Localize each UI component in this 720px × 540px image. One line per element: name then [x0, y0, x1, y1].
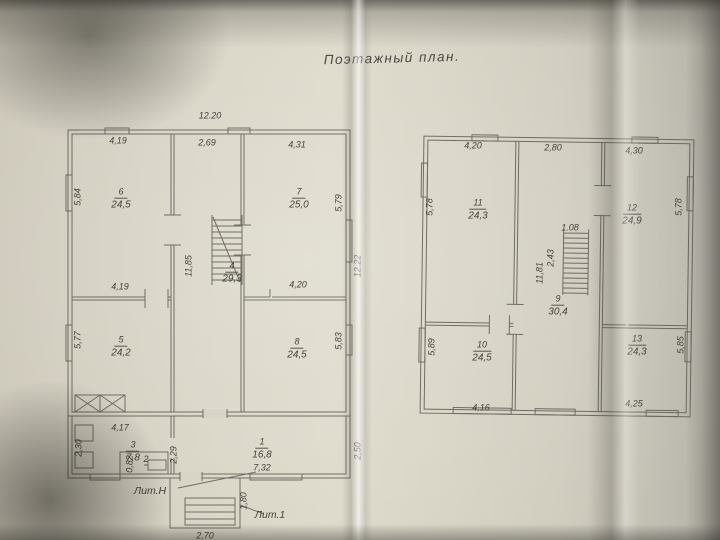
lit-h-label: Лит.Н — [134, 486, 166, 497]
dim-f2-bottom-right: 4,25 — [625, 400, 643, 409]
room-1-label: 1 16,8 — [252, 432, 271, 461]
dim-f2-bottom-left: 4,16 — [472, 404, 490, 413]
dim-f1-annex-mid: 2,29 — [170, 446, 179, 464]
dim-f1-porch-side: 1,80 — [240, 492, 249, 510]
room-9-label: 9 30,4 — [548, 289, 567, 318]
dim-f1-annex-right: 2,50 — [354, 442, 363, 460]
lit-1-label: Лит.1 — [255, 510, 285, 521]
dim-f1-annex-left: 2,30 — [75, 439, 84, 457]
room-4-label: 4 29,3 — [222, 256, 241, 285]
dim-f1-mid-vertical: 11,85 — [185, 255, 194, 277]
dim-f2-top-right: 4,30 — [625, 147, 643, 156]
room-5-label: 5 24,2 — [111, 330, 130, 359]
dim-f2-top-mid: 2,80 — [544, 144, 562, 153]
room-7-label: 7 25,0 — [289, 182, 308, 211]
dim-f2-left-upper: 5,78 — [426, 198, 435, 216]
room-3-label: 3 7,8 — [126, 435, 140, 464]
dim-f2-top-left: 4,20 — [464, 142, 482, 151]
dim-f1-right-lower: 5,83 — [335, 332, 344, 350]
room-2-label: 2 — [139, 449, 152, 467]
page-title: Поэтажный план. — [324, 49, 461, 68]
dim-f2-right-upper: 5,78 — [675, 198, 684, 216]
room-8-label: 8 24,5 — [287, 332, 306, 361]
scanned-floor-plan-photo: Поэтажный план. 12.20 4,19 2,69 4,31 5,8… — [0, 0, 720, 540]
dim-f2-stair-width: 1.08 — [561, 224, 579, 233]
dim-f2-mid-vertical: 11,81 — [536, 262, 545, 284]
photo-shadow-top — [0, 0, 720, 48]
dim-f1-side-total: 12.22 — [354, 255, 363, 278]
dim-f1-top-mid: 2,69 — [198, 139, 216, 148]
floor1-drawing — [60, 120, 370, 540]
room-11-label: 11 24,3 — [468, 193, 487, 222]
dim-f2-right-lower: 5,85 — [677, 336, 686, 354]
dim-f2-left-lower: 5,89 — [428, 338, 437, 356]
room-12-label: 12 24,9 — [622, 198, 641, 227]
dim-f1-porch-bottom: 2,70 — [196, 532, 214, 540]
dim-f1-left-upper: 5,84 — [74, 188, 83, 206]
dim-f1-annex-top: 4,17 — [111, 424, 129, 433]
dim-f2-stair-depth: 2,43 — [547, 249, 556, 267]
dim-f1-mid-left: 4,19 — [111, 283, 129, 292]
dim-f1-top-left: 4,19 — [109, 137, 127, 146]
room-10-label: 10 24,5 — [472, 335, 491, 364]
photo-shadow-top-left — [0, 0, 230, 140]
dim-f1-mid-right: 4,20 — [289, 281, 307, 290]
dim-f1-right-upper: 5,79 — [335, 194, 344, 212]
room-13-label: 13 24,3 — [627, 329, 646, 358]
dim-f1-annex-bottom: 7,32 — [253, 464, 271, 473]
dim-f1-left-lower: 5,77 — [74, 331, 83, 349]
room-6-label: 6 24,5 — [111, 182, 130, 211]
floor2-drawing — [413, 128, 707, 427]
dim-f1-top-total: 12.20 — [199, 112, 222, 121]
dim-f1-top-right: 4,31 — [288, 141, 306, 150]
